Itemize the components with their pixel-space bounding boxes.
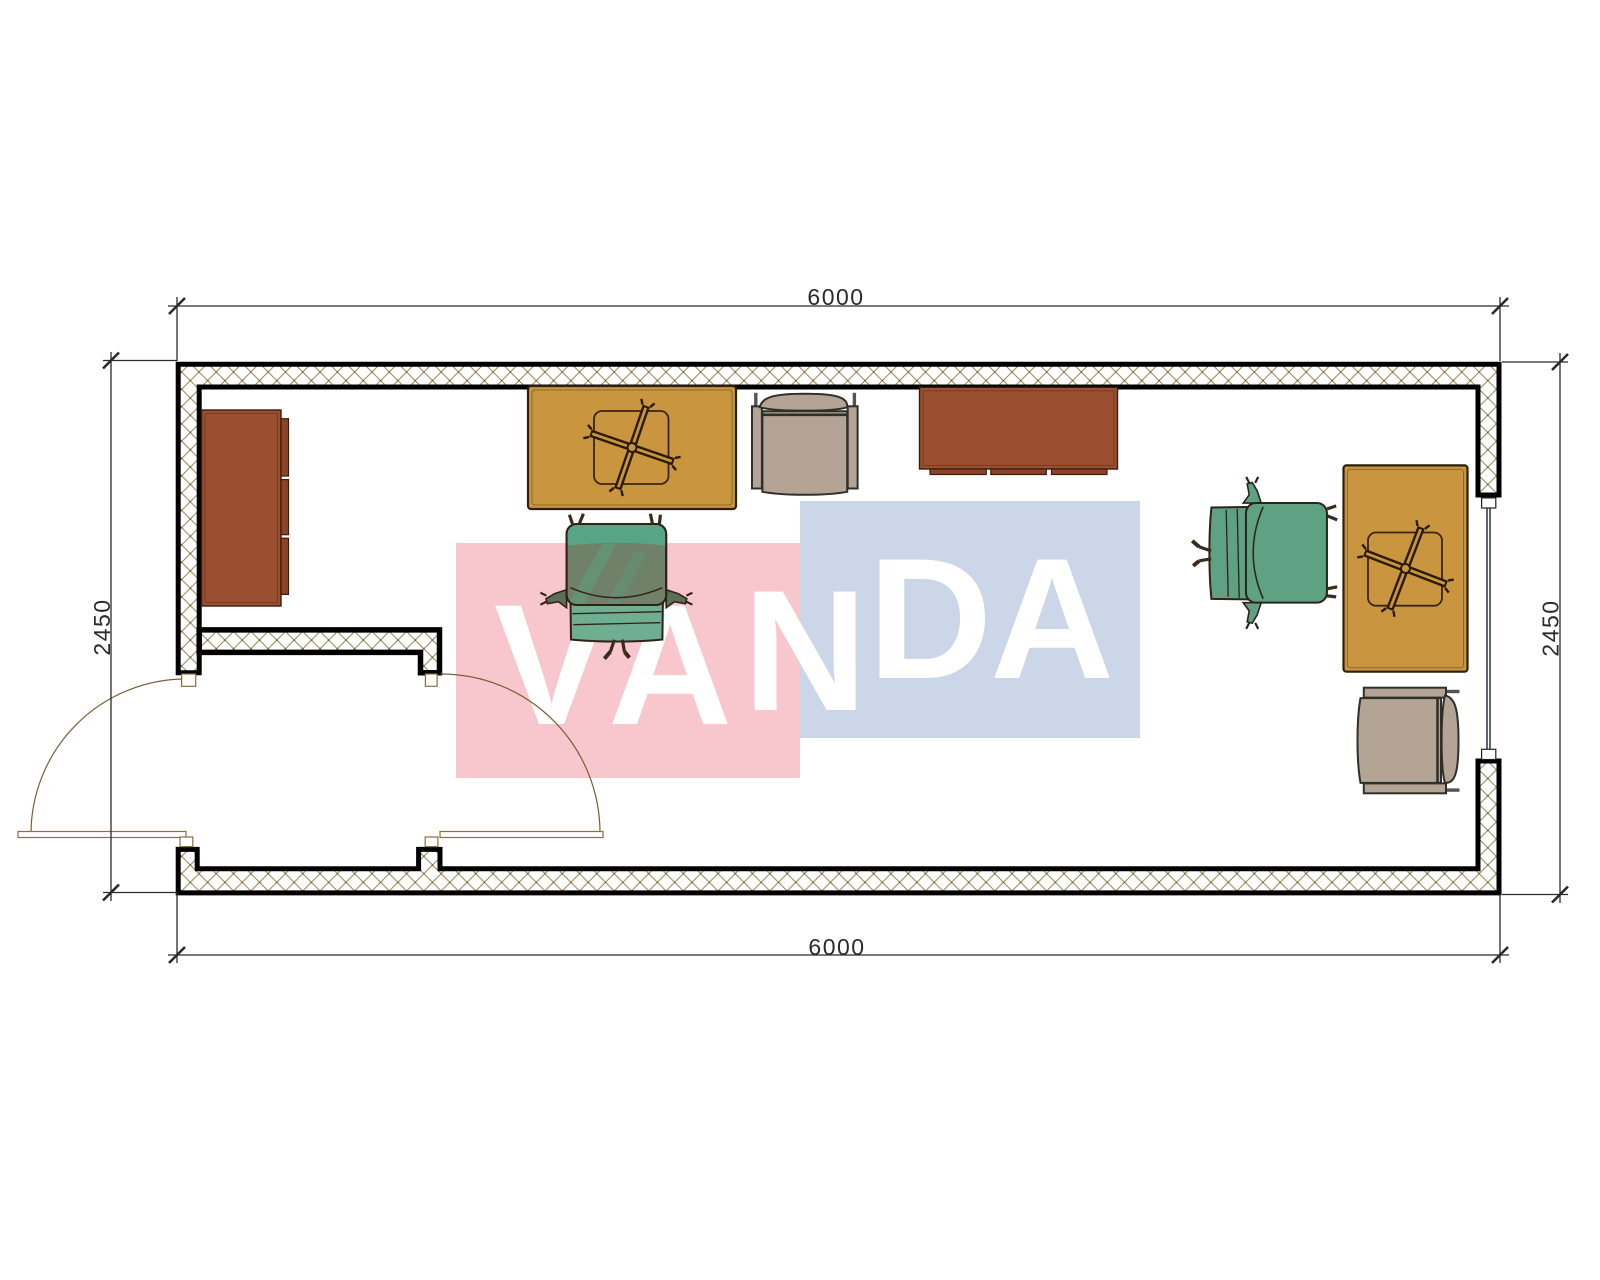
svg-text:N: N — [743, 555, 867, 747]
svg-text:6000: 6000 — [808, 934, 865, 960]
svg-text:2450: 2450 — [89, 598, 115, 655]
svg-text:2450: 2450 — [1538, 599, 1564, 656]
svg-text:D: D — [868, 523, 992, 715]
svg-text:A: A — [990, 523, 1114, 715]
svg-text:6000: 6000 — [807, 284, 864, 310]
